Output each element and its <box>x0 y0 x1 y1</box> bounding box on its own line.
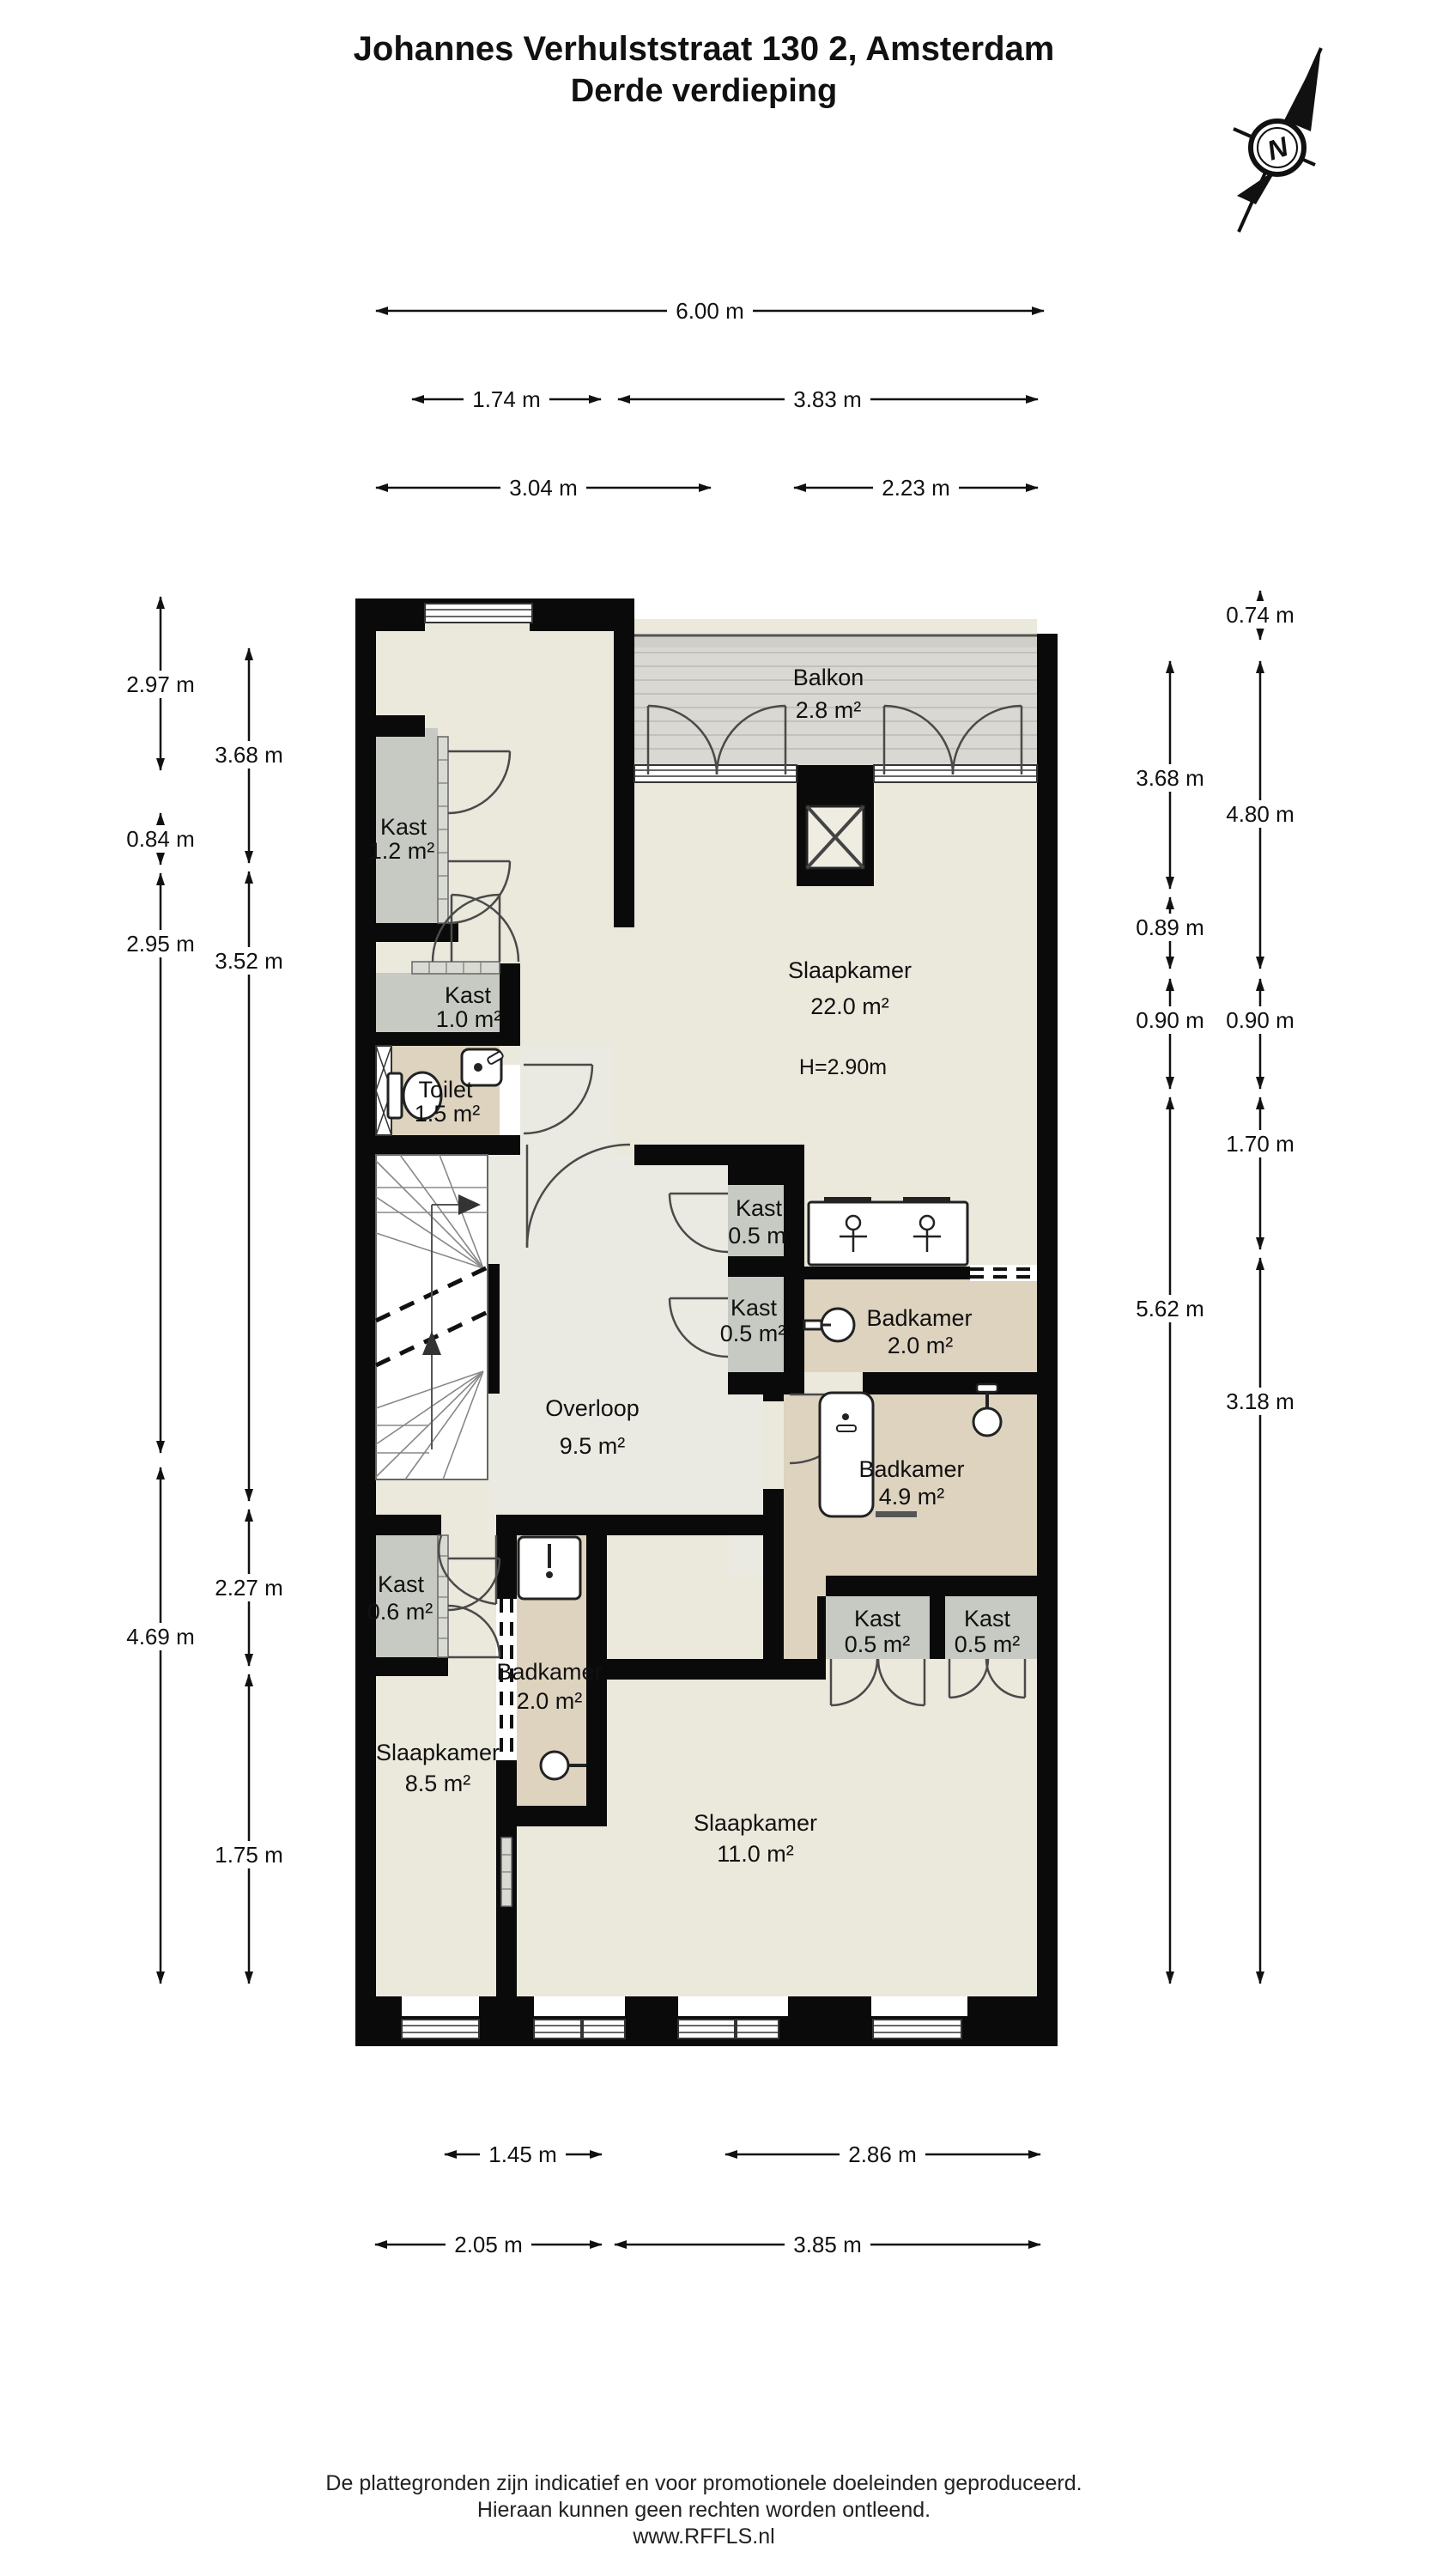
kast10-name: Kast <box>445 982 492 1008</box>
north-compass-icon: N <box>1234 48 1321 232</box>
dim-right-outer-3: 0.90 m <box>1226 1007 1294 1033</box>
dim-bottom-row2-right: 3.85 m <box>793 2232 862 2257</box>
kast05-upper-area: 0.5 m <box>728 1223 786 1249</box>
towel-bar-icon <box>876 1511 917 1517</box>
dim-bottom-row1-right: 2.86 m <box>848 2142 917 2167</box>
badkamer49-area: 4.9 m² <box>879 1484 945 1510</box>
kast05d-area: 0.5 m² <box>955 1631 1021 1657</box>
footer-website: www.RFFLS.nl <box>632 2524 774 2549</box>
kast06-area: 0.6 m² <box>367 1599 433 1625</box>
dim-left-inner-4: 1.75 m <box>215 1842 283 1868</box>
kast05-upper-name: Kast <box>736 1195 783 1221</box>
badkamer20-boven-name: Badkamer <box>866 1305 972 1331</box>
dim-left-outer-2: 0.84 m <box>126 826 195 852</box>
dim-left-outer-3: 2.95 m <box>126 931 195 957</box>
page-title: Johannes Verhulststraat 130 2, Amsterdam… <box>354 30 1055 109</box>
slaapkamer22-area: 22.0 m² <box>810 993 889 1019</box>
dim-bottom-row1-left: 1.45 m <box>488 2142 557 2167</box>
dim-right-inner-1: 3.68 m <box>1136 765 1204 791</box>
corridor-floor <box>520 1046 614 1155</box>
footer-disclaimer: De plattegronden zijn indicatief en voor… <box>325 2471 1082 2549</box>
footer-line1: De plattegronden zijn indicatief en voor… <box>325 2471 1082 2495</box>
dim-right-inner-3: 0.90 m <box>1136 1007 1204 1033</box>
kast05c-area: 0.5 m² <box>845 1631 911 1657</box>
dim-left-outer-1: 2.97 m <box>126 671 195 697</box>
dim-top-row3-left: 3.04 m <box>509 475 578 501</box>
badkamer20-boven-area: 2.0 m² <box>888 1333 954 1358</box>
slaapkamer85-area: 8.5 m² <box>405 1771 471 1796</box>
dim-top-right: 3.83 m <box>793 386 862 412</box>
floorplan-canvas: Johannes Verhulststraat 130 2, Amsterdam… <box>0 0 1449 2576</box>
slaapkamer11-name: Slaapkamer <box>694 1810 817 1836</box>
dim-left-inner-2: 3.52 m <box>215 948 283 974</box>
dim-left-inner-1: 3.68 m <box>215 742 283 768</box>
slaapkamer22-name: Slaapkamer <box>788 957 912 983</box>
staircase <box>376 1155 488 1479</box>
window-top <box>425 604 532 623</box>
slaapkamer22-height: H=2.90m <box>799 1055 887 1079</box>
balkon-area: 2.8 m² <box>796 697 862 723</box>
dim-right-outer-2: 4.80 m <box>1226 801 1294 827</box>
overloop-name: Overloop <box>545 1395 640 1421</box>
kast05d-name: Kast <box>964 1606 1011 1631</box>
dim-right-outer-4: 1.70 m <box>1226 1131 1294 1157</box>
double-vanity-icon <box>809 1197 967 1265</box>
badkamer20-onder-area: 2.0 m² <box>517 1688 583 1714</box>
shower-tray-icon <box>518 1537 580 1599</box>
kast05-lower-name: Kast <box>731 1295 778 1321</box>
kast12-name: Kast <box>380 814 427 840</box>
kast10-area: 1.0 m² <box>436 1006 502 1032</box>
footer-line2: Hieraan kunnen geen rechten worden ontle… <box>477 2498 931 2522</box>
dim-top-left: 1.74 m <box>472 386 541 412</box>
kast10-louver <box>412 962 500 974</box>
dim-left-outer-4: 4.69 m <box>126 1624 195 1649</box>
dim-right-outer-1: 0.74 m <box>1226 602 1294 628</box>
dim-top-total: 6.00 m <box>676 298 744 324</box>
toilet-name: Toilet <box>418 1077 473 1103</box>
dim-right-inner-4: 5.62 m <box>1136 1296 1204 1321</box>
slaapkamer11-area: 11.0 m² <box>717 1841 794 1867</box>
divider-louver <box>501 1838 512 1906</box>
slaapkamer85-name: Slaapkamer <box>376 1740 500 1765</box>
kast12-louver <box>438 737 448 923</box>
dim-right-inner-2: 0.89 m <box>1136 914 1204 940</box>
kast12-area: 1.2 m² <box>369 838 435 864</box>
dim-right-outer-5: 3.18 m <box>1226 1388 1294 1414</box>
dim-bottom-row2-left: 2.05 m <box>454 2232 523 2257</box>
chimney-shaft <box>807 806 864 868</box>
overloop-area: 9.5 m² <box>560 1433 626 1459</box>
kast05-lower-area: 0.5 m² <box>720 1321 786 1346</box>
badkamer20-onder-name: Badkamer <box>496 1659 602 1685</box>
badkamer49-name: Badkamer <box>858 1456 964 1482</box>
title-line1: Johannes Verhulststraat 130 2, Amsterdam <box>354 30 1055 68</box>
balkon-name: Balkon <box>793 665 864 690</box>
kast06-name: Kast <box>378 1571 425 1597</box>
dim-top-row3-right: 2.23 m <box>882 475 950 501</box>
overloop-pocket <box>728 1372 763 1576</box>
kast05c-name: Kast <box>854 1606 901 1631</box>
title-line2: Derde verdieping <box>571 73 837 109</box>
floorplan-page: { "title": { "line1": "Johannes Verhulst… <box>0 0 1449 2576</box>
window-balcony-right <box>874 765 1037 782</box>
dim-left-inner-3: 2.27 m <box>215 1575 283 1601</box>
toilet-area: 1.5 m² <box>415 1101 481 1127</box>
